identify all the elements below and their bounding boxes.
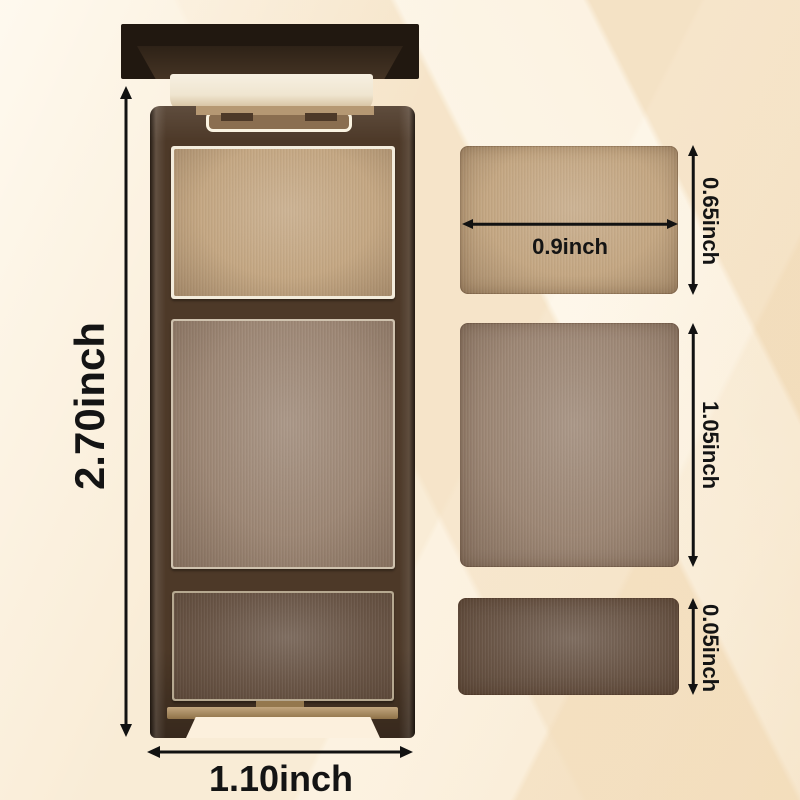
arrow-shaft bbox=[692, 331, 695, 559]
pan-width-dimension-label: 0.9inch bbox=[532, 234, 608, 260]
case-height-dimension-label: 2.70inch bbox=[66, 322, 114, 490]
loose-pan-dark-shade bbox=[458, 598, 679, 695]
pan-dark-height-dimension-label: 0.05inch bbox=[697, 604, 723, 692]
pan-medium-height-dimension-label: 1.05inch bbox=[697, 401, 723, 489]
palette-lid bbox=[121, 24, 419, 79]
pan-frame-light bbox=[171, 146, 395, 299]
arrow-shaft bbox=[156, 751, 404, 754]
palette-body bbox=[150, 106, 415, 738]
pan-frame-medium bbox=[171, 319, 395, 569]
pan-light-shade bbox=[174, 149, 392, 296]
hinge-latch-slot bbox=[206, 111, 352, 132]
pan-dark-shade bbox=[174, 593, 392, 699]
loose-pan-medium-shade bbox=[460, 323, 679, 567]
pan-medium-shade bbox=[173, 321, 393, 567]
bottom-cutout bbox=[186, 717, 380, 738]
hinge-tab bbox=[305, 113, 337, 121]
product-dimension-diagram: 2.70inch 1.10inch 0.9inch 0.65inch 1.05i… bbox=[0, 0, 800, 800]
arrow-shaft bbox=[692, 153, 695, 287]
arrow-shaft bbox=[125, 95, 128, 728]
pan-frame-dark bbox=[172, 591, 394, 701]
case-height-dimension-arrow bbox=[119, 86, 133, 737]
case-width-dimension-label: 1.10inch bbox=[209, 758, 353, 800]
pan-width-dimension-arrow bbox=[462, 217, 678, 231]
case-width-dimension-arrow bbox=[147, 745, 413, 759]
arrow-shaft bbox=[470, 223, 670, 226]
pan-light-height-dimension-label: 0.65inch bbox=[697, 177, 723, 265]
arrow-shaft bbox=[692, 606, 695, 687]
hinge-tab bbox=[221, 113, 253, 121]
